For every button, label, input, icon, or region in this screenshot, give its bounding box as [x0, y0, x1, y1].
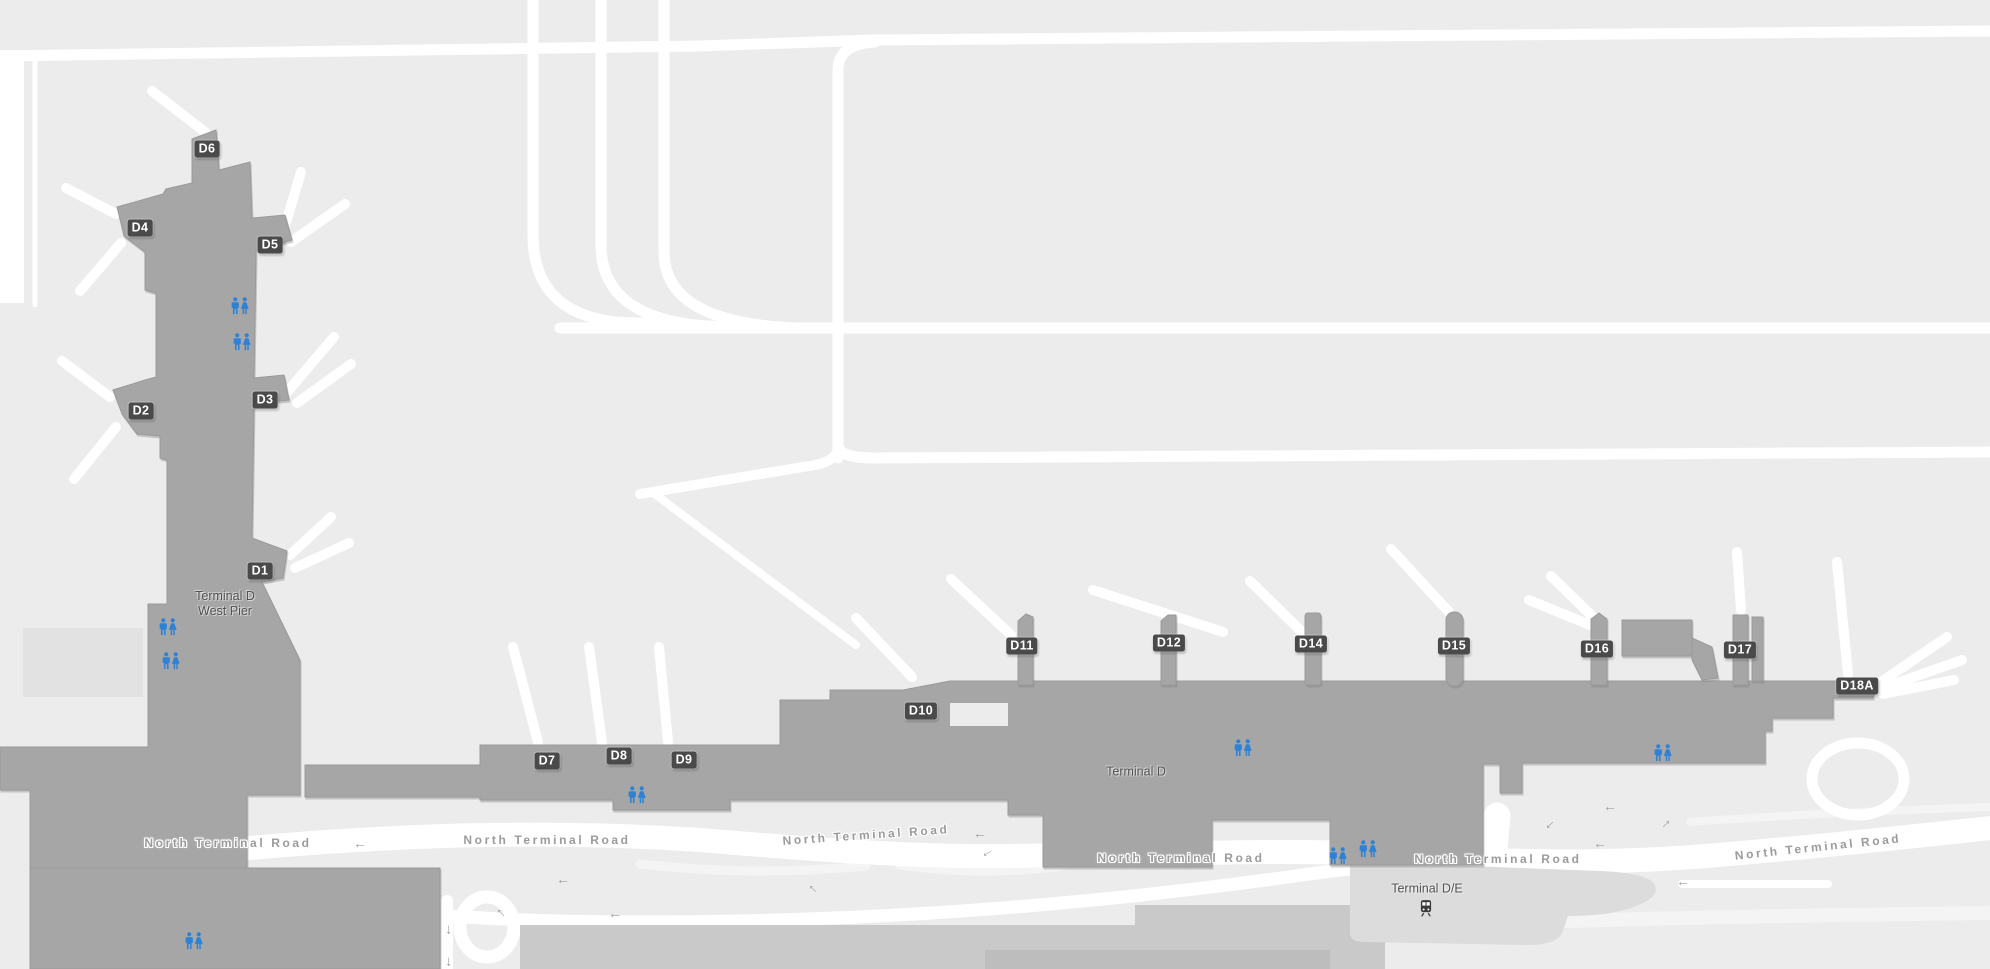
direction-arrow-icon: ← — [1676, 874, 1690, 888]
road-label-north-terminal-road-3: North Terminal Road — [782, 822, 950, 848]
restroom-icon[interactable] — [627, 786, 647, 804]
gate-label-D8[interactable]: D8 — [607, 748, 632, 765]
airport-map: D6D4D5D2D3D1D7D8D9D10D11D12D14D15D16D17D… — [0, 0, 1990, 969]
restroom-icon[interactable] — [1653, 744, 1673, 762]
direction-arrow-icon: ← — [1658, 816, 1678, 836]
gate-label-D11[interactable]: D11 — [1006, 638, 1037, 655]
gate-label-D2[interactable]: D2 — [129, 403, 154, 420]
direction-arrow-icon: ← — [353, 836, 367, 850]
gate-label-D18A[interactable]: D18A — [1836, 678, 1878, 695]
direction-arrow-icon: ← — [439, 955, 453, 969]
direction-arrow-icon: ← — [608, 906, 622, 920]
area-label-terminal-d: Terminal D — [1106, 765, 1166, 780]
direction-arrow-icon: ← — [493, 901, 513, 921]
gate-label-D12[interactable]: D12 — [1153, 635, 1185, 652]
direction-arrow-icon: ← — [1603, 799, 1617, 813]
road-label-north-terminal-road-4: North Terminal Road — [1097, 851, 1264, 865]
restroom-icon[interactable] — [158, 618, 178, 636]
direction-arrow-icon: ← — [439, 923, 453, 937]
restroom-icon[interactable] — [161, 652, 181, 670]
area-label-terminal-d-west-pier: Terminal DWest Pier — [195, 589, 255, 619]
area-label-line: Terminal D/E — [1391, 882, 1463, 897]
direction-arrow-icon: ← — [805, 877, 825, 897]
area-label-line: West Pier — [195, 604, 255, 619]
restroom-icon[interactable] — [1358, 840, 1378, 858]
restroom-icon[interactable] — [1328, 847, 1348, 865]
road-label-north-terminal-road-2: North Terminal Road — [463, 833, 630, 847]
map-label-layer: D6D4D5D2D3D1D7D8D9D10D11D12D14D15D16D17D… — [0, 0, 1990, 969]
train-icon[interactable] — [1419, 899, 1434, 918]
road-label-north-terminal-road-6: North Terminal Road — [1734, 831, 1902, 862]
restroom-icon[interactable] — [230, 297, 250, 315]
area-label-terminal-d-e: Terminal D/E — [1391, 882, 1463, 897]
direction-arrow-icon: ← — [976, 841, 995, 860]
gate-label-D15[interactable]: D15 — [1438, 638, 1470, 655]
direction-arrow-icon: ← — [556, 872, 570, 886]
gate-label-D14[interactable]: D14 — [1295, 636, 1327, 653]
area-label-line: Terminal D — [1106, 765, 1166, 780]
gate-label-D6[interactable]: D6 — [195, 141, 220, 158]
gate-label-D17[interactable]: D17 — [1724, 642, 1756, 659]
road-label-north-terminal-road-5: North Terminal Road — [1414, 852, 1581, 866]
direction-arrow-icon: ← — [1593, 836, 1607, 850]
gate-label-D10[interactable]: D10 — [905, 703, 937, 720]
gate-label-D1[interactable]: D1 — [248, 563, 273, 580]
restroom-icon[interactable] — [232, 333, 252, 351]
restroom-icon[interactable] — [1233, 739, 1253, 757]
gate-label-D3[interactable]: D3 — [253, 392, 278, 409]
road-label-north-terminal-road-1: North Terminal Road — [144, 836, 311, 850]
gate-label-D4[interactable]: D4 — [128, 220, 153, 237]
gate-label-D5[interactable]: D5 — [258, 237, 283, 254]
restroom-icon[interactable] — [184, 932, 204, 950]
direction-arrow-icon: ← — [973, 826, 987, 840]
gate-label-D7[interactable]: D7 — [535, 753, 560, 770]
area-label-line: Terminal D — [195, 589, 255, 604]
gate-label-D9[interactable]: D9 — [672, 752, 697, 769]
gate-label-D16[interactable]: D16 — [1581, 641, 1613, 658]
direction-arrow-icon: ← — [1538, 813, 1558, 833]
